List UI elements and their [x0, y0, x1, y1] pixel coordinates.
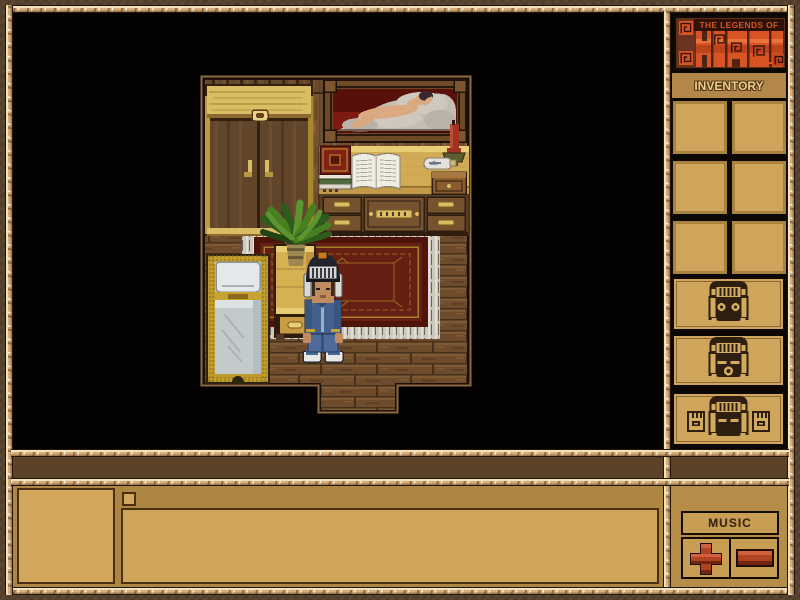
svg-text:THE LEGENDS OF: THE LEGENDS OF: [699, 20, 778, 30]
